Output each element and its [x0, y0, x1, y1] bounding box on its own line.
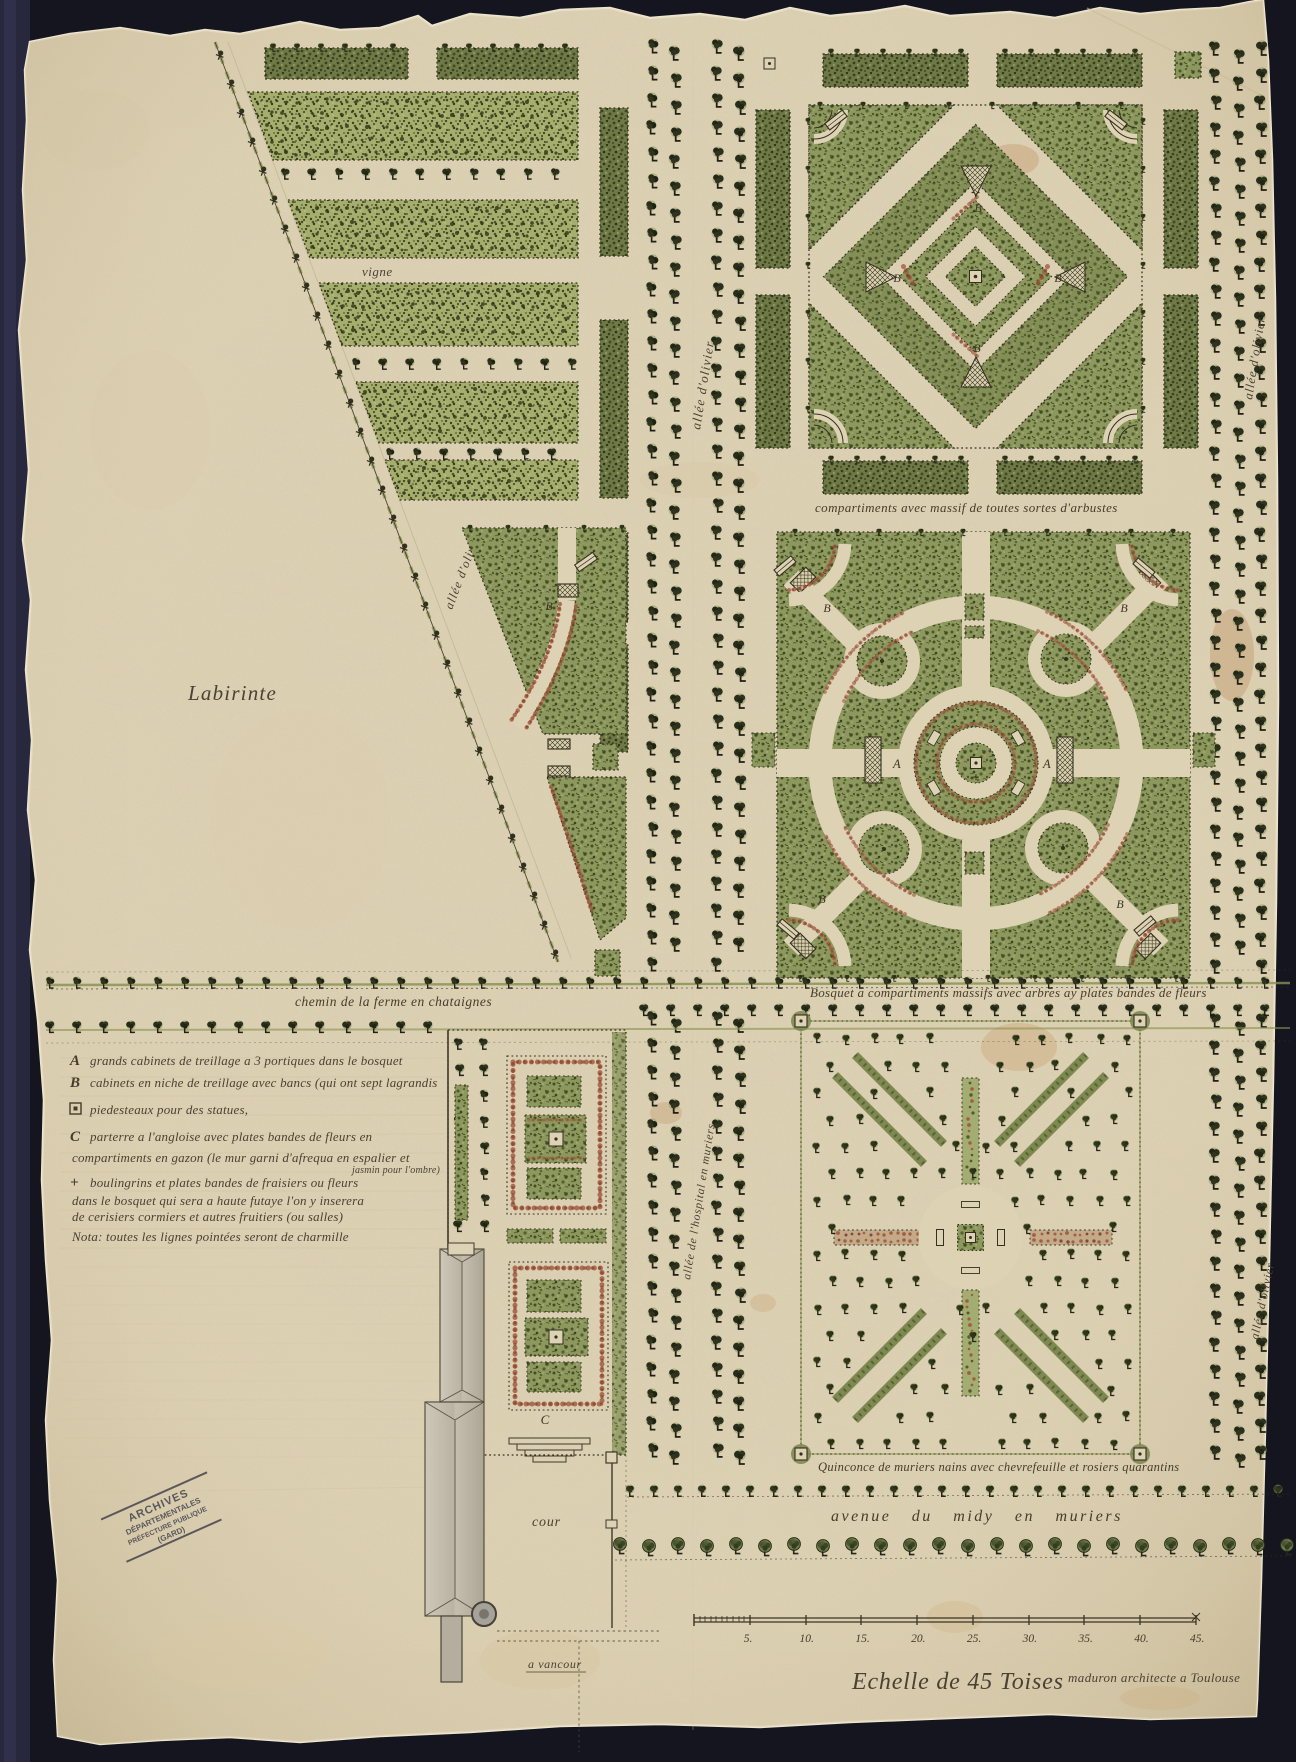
svg-text:+: + — [972, 770, 979, 784]
svg-text:B: B — [1116, 897, 1124, 911]
svg-text:+: + — [70, 1175, 79, 1191]
svg-text:Echelle de 45 Toises: Echelle de 45 Toises — [851, 1669, 1064, 1695]
svg-text:a vancour: a vancour — [528, 1657, 582, 1671]
svg-text:45.: 45. — [1190, 1633, 1204, 1645]
svg-text:B: B — [974, 201, 982, 215]
svg-text:parterre a l'angloise avec pla: parterre a l'angloise avec plates bandes… — [89, 1129, 372, 1144]
svg-text:A: A — [892, 757, 901, 771]
svg-text:B: B — [1120, 601, 1128, 615]
svg-text:C: C — [70, 1129, 81, 1145]
svg-text:jasmin pour l'ombre): jasmin pour l'ombre) — [350, 1165, 440, 1176]
svg-text:piedesteaux pour des statues,: piedesteaux pour des statues, — [89, 1102, 248, 1117]
svg-text:cabinets en niche de treillage: cabinets en niche de treillage avec banc… — [90, 1075, 438, 1090]
svg-text:B: B — [823, 601, 831, 615]
svg-text:de cerisiers cormiers et autre: de cerisiers cormiers et autres fruitier… — [72, 1209, 343, 1224]
svg-text:maduron architecte a Toulouse: maduron architecte a Toulouse — [1068, 1670, 1240, 1685]
svg-text:vigne: vigne — [362, 264, 393, 279]
svg-text:Quinconce de muriers nains ave: Quinconce de muriers nains avec chevrefe… — [818, 1460, 1179, 1474]
svg-text:30.: 30. — [1022, 1633, 1037, 1645]
svg-text:35.: 35. — [1077, 1633, 1092, 1645]
svg-text:20.: 20. — [911, 1633, 925, 1645]
svg-text:B: B — [973, 341, 981, 355]
svg-text:compartiments avec massif de t: compartiments avec massif de toutes sort… — [815, 500, 1118, 515]
svg-text:25.: 25. — [967, 1633, 981, 1645]
svg-text:chemin de la ferme en chataign: chemin de la ferme en chataignes — [295, 994, 492, 1009]
svg-text:B: B — [893, 271, 901, 285]
svg-text:compartiments en gazon (le mur: compartiments en gazon (le mur garni d'a… — [72, 1150, 410, 1165]
svg-text:40.: 40. — [1134, 1633, 1148, 1645]
svg-text:dans le bosquet qui sera a hau: dans le bosquet qui sera a haute futaye … — [72, 1193, 364, 1208]
svg-text:avenue du midy en muriers: avenue du midy en muriers — [831, 1508, 1123, 1525]
svg-text:boulingrins et plates bandes d: boulingrins et plates bandes de fraisier… — [90, 1175, 358, 1190]
svg-text:A: A — [1042, 757, 1051, 771]
svg-text:C: C — [541, 1412, 550, 1427]
svg-text:B: B — [545, 599, 553, 613]
svg-text:grands cabinets de treillage a: grands cabinets de treillage a 3 portiqu… — [90, 1053, 403, 1068]
svg-text:B: B — [818, 892, 826, 906]
svg-text:5.: 5. — [744, 1633, 753, 1645]
svg-text:15.: 15. — [855, 1633, 869, 1645]
svg-text:cour: cour — [532, 1515, 561, 1530]
svg-text:Nota: toutes les lignes pointé: Nota: toutes les lignes pointées seront … — [71, 1229, 349, 1244]
svg-text:10.: 10. — [800, 1633, 814, 1645]
svg-text:B: B — [1054, 271, 1062, 285]
svg-text:B: B — [69, 1075, 80, 1091]
svg-text:A: A — [69, 1053, 80, 1069]
svg-text:Labirinte: Labirinte — [187, 681, 277, 705]
